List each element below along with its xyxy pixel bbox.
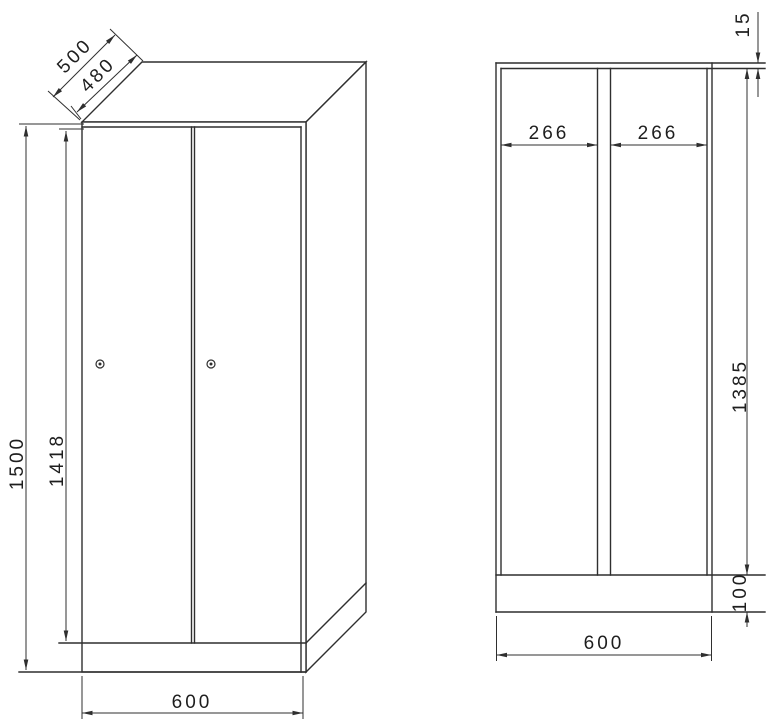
dim-label-266-right: 266 — [638, 123, 679, 144]
dim-height-door: 1418 — [47, 129, 84, 641]
side-panel-face — [306, 62, 366, 672]
dim-label-600-front: 600 — [172, 692, 213, 713]
dim-label-1418: 1418 — [47, 433, 68, 487]
technical-drawing-page: 500 480 1500 1418 600 — [0, 0, 776, 728]
dim-interior-height: 1385 — [730, 69, 751, 576]
dim-label-1500: 1500 — [7, 436, 28, 490]
dim-label-15: 15 — [733, 10, 754, 37]
dim-width-front: 600 — [82, 676, 303, 719]
perspective-view: 500 480 1500 1418 600 — [7, 29, 366, 719]
dim-label-100: 100 — [730, 572, 751, 613]
extension-line — [110, 29, 143, 61]
front-section-view: 266 266 15 1385 100 600 — [496, 10, 765, 661]
locker-dimension-drawing: 500 480 1500 1418 600 — [0, 0, 776, 728]
extension-line — [48, 91, 80, 120]
dim-label-600-body: 600 — [584, 633, 625, 654]
dim-width-body: 600 — [497, 616, 712, 661]
locker-body-outline — [19, 62, 366, 672]
dim-label-1385: 1385 — [730, 359, 751, 413]
dim-label-266-left: 266 — [529, 123, 570, 144]
dim-plinth-height: 100 — [730, 572, 751, 627]
dim-top-panel: 15 — [733, 10, 758, 97]
dim-height-total: 1500 — [7, 124, 84, 670]
dim-compartment-right: 266 — [611, 123, 708, 145]
extension-line — [71, 106, 81, 119]
dim-compartment-left: 266 — [501, 123, 598, 145]
